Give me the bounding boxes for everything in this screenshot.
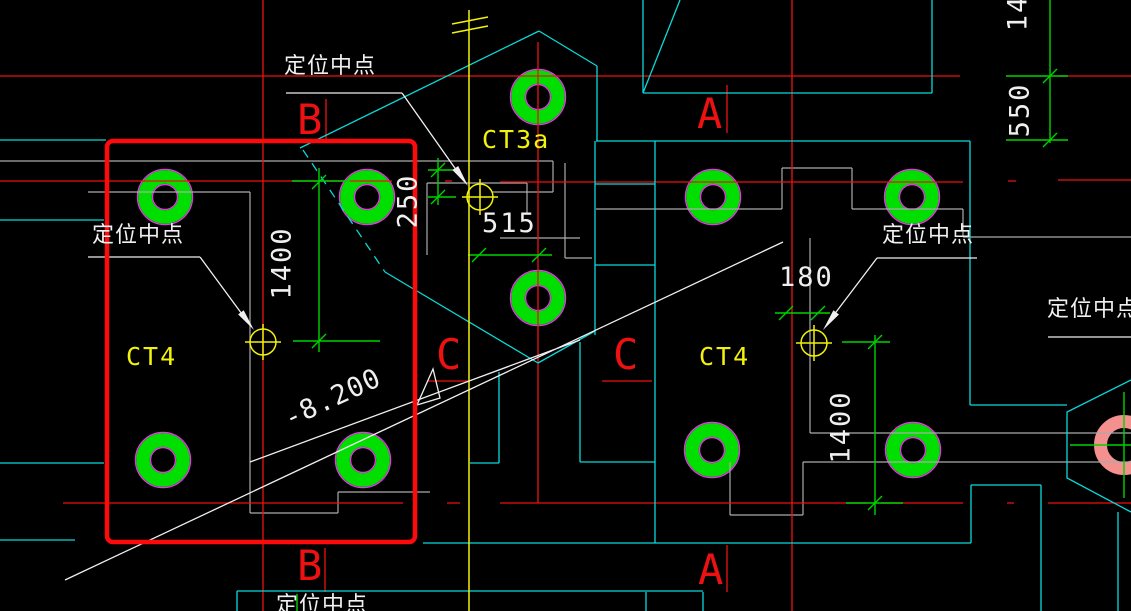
anchor-midpoint-label-far-right[interactable]: 定位中点 [1047, 299, 1131, 321]
drawing-geometry [0, 0, 1131, 611]
grid-label-c-right[interactable]: C [613, 334, 638, 376]
cad-viewport: 定位中点 定位中点 定位中点 定位中点 定位中点 CT4 CT3a CT4 25… [0, 0, 1131, 611]
pile-donut[interactable] [686, 170, 741, 225]
component-label-ct3a[interactable]: CT3a [482, 127, 550, 152]
pile-donut[interactable] [138, 170, 193, 225]
grid-label-a-bottom[interactable]: A [698, 549, 723, 591]
grid-label-b-top[interactable]: B [297, 99, 322, 141]
dimension-1400-left[interactable]: 1400 [269, 226, 296, 299]
anchor-midpoint-label-right[interactable]: 定位中点 [882, 225, 974, 247]
anchor-midpoint-label-bottom-clipped[interactable]: 定位中点 [276, 595, 368, 611]
pile-donut[interactable] [685, 423, 740, 478]
grid-label-c-left[interactable]: C [436, 334, 461, 376]
grid-label-b-bottom[interactable]: B [297, 545, 322, 587]
component-label-ct4-left[interactable]: CT4 [126, 344, 177, 369]
pile-donut[interactable] [886, 423, 941, 478]
pile-donut[interactable] [885, 170, 940, 225]
pile-donut[interactable] [136, 433, 191, 488]
component-label-ct4-right[interactable]: CT4 [699, 344, 750, 369]
leader-arrowhead [238, 310, 254, 330]
dimension-lines[interactable] [292, 0, 1068, 611]
dimension-515[interactable]: 515 [482, 210, 537, 237]
dimension-550[interactable]: 550 [1007, 83, 1034, 138]
yellow-reference-line [452, 10, 488, 611]
anchor-midpoint-label-top[interactable]: 定位中点 [284, 56, 376, 78]
pink-pile-crosshair [1070, 392, 1131, 498]
dimension-250[interactable]: 250 [395, 174, 422, 229]
anchor-midpoint-label-left[interactable]: 定位中点 [92, 225, 184, 247]
section-diagonal-lines [65, 242, 783, 580]
dimension-1400-right[interactable]: 1400 [828, 390, 855, 463]
pile-donut[interactable] [336, 433, 391, 488]
anchor-target-symbol[interactable] [796, 325, 832, 361]
leader-underlines [88, 93, 1131, 337]
dimension-14-clipped[interactable]: 14 [1005, 0, 1032, 31]
pile-donut[interactable] [340, 170, 395, 225]
grid-label-a-top[interactable]: A [697, 93, 722, 135]
dimension-180[interactable]: 180 [779, 264, 834, 291]
